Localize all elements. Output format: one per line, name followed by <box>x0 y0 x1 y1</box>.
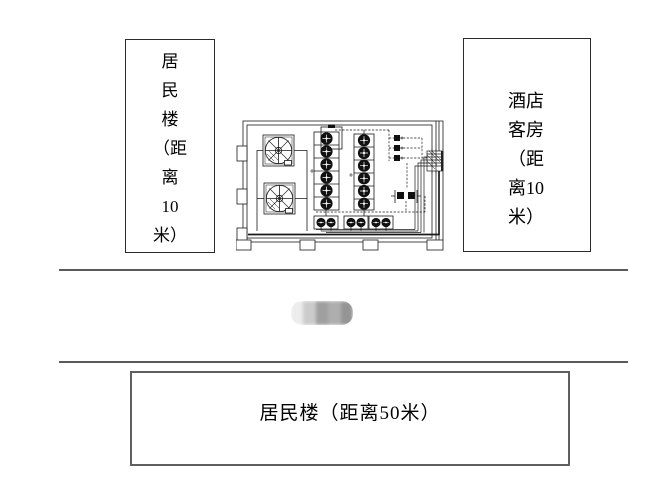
valve-icon <box>394 135 404 161</box>
page: 居 民 楼 （距 离 10 米） 酒店 客房 （距 离10 米） <box>0 0 663 495</box>
mosaic-cell <box>316 301 328 325</box>
equipment-room-plan-drawing <box>236 113 453 254</box>
tank-bank-right <box>349 130 374 210</box>
label-line: 居 <box>162 47 179 76</box>
label-line: 民 <box>162 76 179 105</box>
pump-pair <box>369 216 393 231</box>
wall-pipe-connector <box>427 149 444 173</box>
label-line: 米） <box>153 221 187 250</box>
pump-pair <box>314 216 338 231</box>
tank-bank-left <box>310 125 342 211</box>
fan-icon <box>263 135 294 166</box>
label-line: 10 <box>162 192 179 221</box>
foundation-pad <box>236 240 443 250</box>
room-walls <box>243 121 443 242</box>
wall-column <box>237 146 247 242</box>
label-line: 离 <box>162 163 179 192</box>
divider-line-bottom <box>59 361 628 363</box>
label-line: （距 <box>153 134 187 163</box>
label-line: 客房 <box>508 116 590 145</box>
bank-to-pump-lines <box>326 210 364 216</box>
label-line: 楼 <box>162 105 179 134</box>
label-box-hotel-10m: 酒店 客房 （距 离10 米） <box>463 38 591 252</box>
fan-pipes <box>257 151 307 232</box>
label-box-residential-50m: 居民楼（距离50米） <box>130 371 570 466</box>
label-line: 离10 <box>508 174 590 203</box>
divider-line-top <box>59 269 628 271</box>
label-text: 居民楼（距离50米） <box>259 398 440 425</box>
mosaic-cell <box>328 301 340 325</box>
label-line: 米） <box>508 203 590 232</box>
fan-icon <box>264 183 295 214</box>
mosaic-cell <box>341 301 353 325</box>
mosaic-cells <box>291 301 353 325</box>
mosaic-cell <box>303 301 315 325</box>
label-line: （距 <box>508 145 590 174</box>
redacted-text-mosaic <box>291 301 353 325</box>
mosaic-cell <box>291 301 303 325</box>
pump-pair <box>344 216 368 231</box>
label-line: 酒店 <box>508 87 590 116</box>
label-box-residential-10m: 居 民 楼 （距 离 10 米） <box>125 39 215 253</box>
